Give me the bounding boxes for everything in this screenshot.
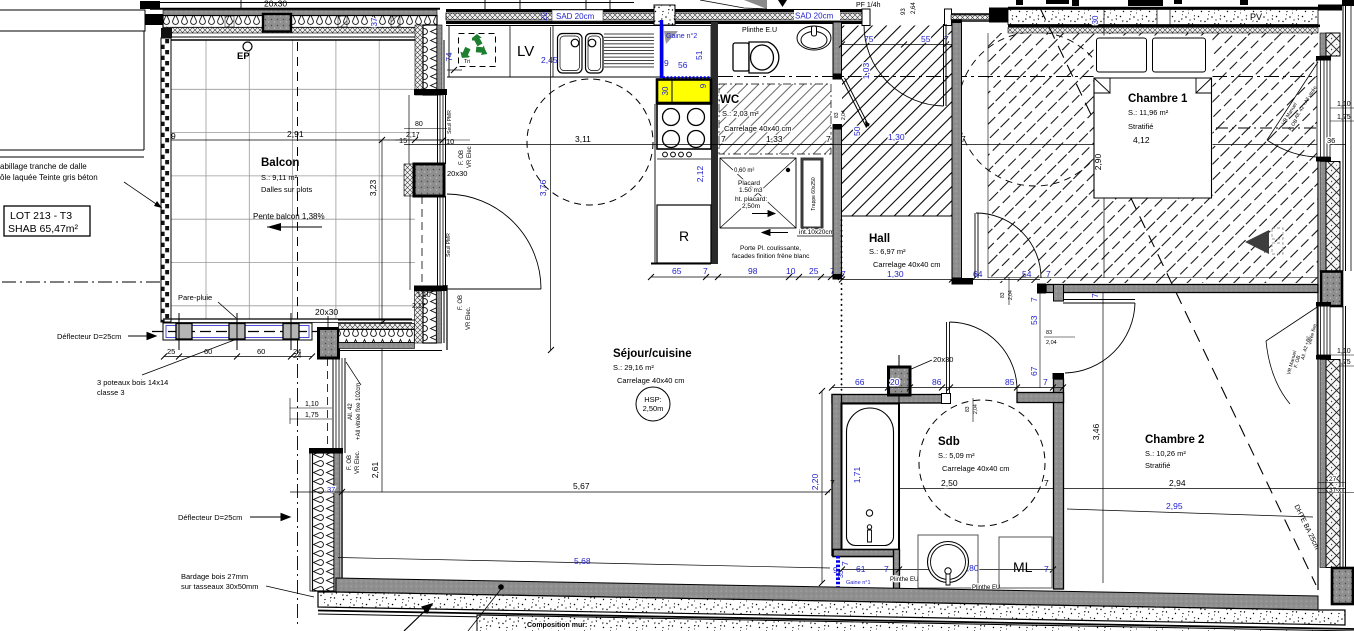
svg-text:20x30: 20x30 [447,169,467,178]
svg-text:2,50m: 2,50m [643,404,664,413]
svg-text:98: 98 [748,266,758,276]
svg-text:1,75: 1,75 [305,412,319,419]
svg-text:Déflecteur D=25cm: Déflecteur D=25cm [57,332,121,341]
svg-text:7: 7 [703,266,708,276]
svg-text:2,17: 2,17 [406,132,420,139]
svg-text:Stratifié: Stratifié [1128,122,1153,131]
svg-text:2,20: 2,20 [810,473,820,490]
svg-text:53: 53 [1029,315,1039,325]
svg-text:SHAB 65,47m²: SHAB 65,47m² [8,223,79,235]
svg-text:5,68: 5,68 [574,556,591,566]
svg-text:2,45: 2,45 [541,55,558,65]
svg-text:60: 60 [204,347,212,356]
svg-text:3,11: 3,11 [575,134,591,144]
svg-text:9: 9 [664,58,669,68]
svg-text:50: 50 [852,126,862,136]
svg-text:1,75: 1,75 [1337,114,1351,121]
svg-text:Balcon: Balcon [261,157,299,169]
svg-text:2,95: 2,95 [1166,501,1183,511]
svg-text:83: 83 [834,112,840,118]
svg-text:7: 7 [1090,293,1100,298]
svg-text:1,03: 1,03 [861,62,871,79]
svg-text:PV: PV [1250,12,1262,22]
svg-text:ôle laquée Teinte gris béton: ôle laquée Teinte gris béton [0,173,98,182]
svg-text:S.: 29,16 m²: S.: 29,16 m² [613,363,654,372]
svg-text:9: 9 [699,83,708,88]
svg-text:2,04: 2,04 [973,404,979,414]
svg-text:F. OB: F. OB [347,455,353,470]
svg-text:ML: ML [1013,559,1033,575]
svg-text:2,90: 2,90 [1093,153,1103,170]
svg-text:1,10: 1,10 [305,401,319,408]
svg-text:S.: 10,26 m²: S.: 10,26 m² [1145,449,1186,458]
svg-text:classe 3: classe 3 [97,388,125,397]
svg-text:Carrelage 40x40 cm: Carrelage 40x40 cm [724,124,792,133]
svg-text:Tri: Tri [464,59,470,65]
svg-text:1,30: 1,30 [888,132,905,142]
svg-text:4,12: 4,12 [1133,135,1150,145]
svg-text:Chambre 1: Chambre 1 [1128,93,1188,105]
svg-text:Séjour/cuisine: Séjour/cuisine [613,348,692,360]
svg-text:SAD 20cm: SAD 20cm [556,12,595,21]
svg-text:93: 93 [901,8,907,15]
svg-text:7: 7 [1044,564,1049,574]
svg-text:Seuil PMR: Seuil PMR [447,110,453,134]
svg-text:20: 20 [540,12,549,21]
svg-text:7: 7 [826,134,831,144]
svg-text:Plinthe E.U: Plinthe E.U [742,27,777,34]
svg-text:7: 7 [721,134,726,144]
svg-text:2,94: 2,94 [1169,478,1186,488]
svg-text:S.: 6,97 m²: S.: 6,97 m² [869,247,906,256]
svg-text:66: 66 [855,377,865,387]
svg-text:0,60 m²: 0,60 m² [734,168,754,174]
svg-text:All. 42: All. 42 [348,403,354,420]
svg-text:83: 83 [1000,292,1006,298]
svg-text:5,67: 5,67 [573,481,590,491]
svg-text:WC: WC [720,94,739,106]
svg-text:abillage tranche de dalle: abillage tranche de dalle [0,162,87,171]
svg-text:R: R [679,228,689,244]
svg-text:F. OB: F. OB [458,295,464,310]
svg-text:EP: EP [237,51,250,62]
svg-text:2,64: 2,64 [911,2,917,14]
svg-text:3,46: 3,46 [1091,423,1101,440]
svg-text:1,71: 1,71 [852,466,862,483]
svg-text:86: 86 [932,377,942,387]
svg-text:SAD 20cm: SAD 20cm [795,12,834,21]
svg-text:83: 83 [965,406,971,412]
svg-text:Seuil PMR: Seuil PMR [446,233,452,257]
svg-text:7: 7 [840,561,850,566]
svg-text:3 poteaux bois 14x14: 3 poteaux bois 14x14 [97,378,168,387]
svg-text:1.50 m3: 1.50 m3 [739,187,763,194]
svg-text:35: 35 [838,570,845,578]
svg-text:15: 15 [399,136,407,145]
svg-text:65: 65 [672,266,682,276]
svg-text:25: 25 [167,347,175,356]
svg-text:1,33: 1,33 [766,134,783,144]
svg-text:Pare-pluie: Pare-pluie [178,293,212,302]
svg-text:3,76: 3,76 [538,179,548,196]
svg-text:7: 7 [830,478,835,488]
svg-text:51: 51 [694,50,704,60]
svg-text:Gaine n°2: Gaine n°2 [666,32,697,40]
svg-text:2,61: 2,61 [370,461,380,478]
svg-text:3,23: 3,23 [368,179,378,196]
svg-text:7: 7 [1044,478,1049,488]
svg-text:37 x: 37 x [1329,487,1342,494]
svg-text:30: 30 [661,86,670,95]
svg-text:20x30: 20x30 [315,307,338,317]
svg-text:Carrelage 40x40 cm: Carrelage 40x40 cm [942,464,1010,473]
svg-text:85: 85 [1005,377,1015,387]
svg-text:74: 74 [445,52,454,61]
svg-text:Bardage bois 27mm: Bardage bois 27mm [181,572,248,581]
svg-text:Gaine n°1: Gaine n°1 [846,580,871,586]
svg-text:2,50: 2,50 [941,478,958,488]
svg-text:HSP:: HSP: [644,395,662,404]
svg-text:sur tasseaux 30x50mm: sur tasseaux 30x50mm [181,582,259,591]
svg-text:9: 9 [171,131,176,141]
svg-text:Sdb: Sdb [938,436,960,448]
svg-text:LOT 213 - T3: LOT 213 - T3 [10,210,72,222]
svg-text:S.: 9,11 m²: S.: 9,11 m² [261,173,298,182]
svg-text:Porte Pl. coulissante,: Porte Pl. coulissante, [740,245,801,252]
svg-text:56: 56 [678,60,688,70]
svg-text:37: 37 [327,485,335,494]
svg-text:83: 83 [1046,330,1052,336]
svg-text:Trappe 60x250: Trappe 60x250 [811,177,817,211]
svg-text:int.10x20cm: int.10x20cm [799,229,834,236]
svg-text:Dalles sur plots: Dalles sur plots [261,185,313,194]
svg-text:PF 1/4h: PF 1/4h [856,2,881,9]
svg-text:Carrelage 40x40 cm: Carrelage 40x40 cm [873,260,941,269]
svg-text:facades finition frêne blanc: facades finition frêne blanc [732,253,810,260]
svg-text:1,10: 1,10 [1337,348,1351,355]
svg-text:Chambre 2: Chambre 2 [1145,434,1204,446]
svg-text:S.: 11,96 m²: S.: 11,96 m² [1128,108,1169,117]
svg-text:2,91: 2,91 [287,129,304,139]
svg-text:36: 36 [1327,136,1335,145]
svg-text:Hall: Hall [869,233,890,245]
svg-text:LV: LV [517,43,534,60]
svg-text:S.: 5,09 m²: S.: 5,09 m² [938,451,975,460]
svg-text:27: 27 [1329,476,1337,483]
svg-text:60: 60 [257,347,265,356]
svg-text:Pente balcon 1,38%: Pente balcon 1,38% [253,212,325,221]
svg-text:37: 37 [370,17,379,26]
svg-text:80: 80 [415,121,423,128]
svg-text:1,10: 1,10 [1337,101,1351,108]
svg-text:S.: 2,03 m²: S.: 2,03 m² [722,109,759,118]
svg-text:ht. placard:: ht. placard: [735,196,767,203]
svg-text:VR Elec.: VR Elec. [466,306,472,330]
svg-text:VR Elec: VR Elec [467,146,473,168]
svg-text:Placard: Placard [738,180,760,187]
svg-text:Composition mur:: Composition mur: [527,622,587,629]
svg-text:2,17: 2,17 [412,303,426,310]
svg-text:30: 30 [1091,15,1100,24]
svg-text:Stratifié: Stratifié [1145,461,1170,470]
svg-text:2,04: 2,04 [1046,340,1057,346]
svg-text:1,10: 1,10 [417,292,431,299]
svg-text:VR Elec.: VR Elec. [355,450,361,474]
svg-text:9: 9 [833,565,838,575]
svg-text:Plinthe EU: Plinthe EU [890,577,918,583]
svg-text:20: 20 [890,377,900,387]
svg-text:7: 7 [1043,377,1048,387]
svg-text:25: 25 [809,266,819,276]
svg-text:2,50m: 2,50m [742,203,760,210]
svg-text:+All vitrée fixe 102cm: +All vitrée fixe 102cm [356,383,362,440]
svg-text:2,12: 2,12 [695,165,705,182]
svg-text:7: 7 [1029,297,1039,302]
svg-text:7: 7 [884,564,889,574]
svg-text:Carrelage 40x40 cm: Carrelage 40x40 cm [617,376,685,385]
svg-text:F. OB: F. OB [459,150,465,165]
svg-text:10: 10 [786,266,796,276]
svg-text:20x30: 20x30 [264,0,287,9]
svg-text:Déflecteur D=25cm: Déflecteur D=25cm [178,513,242,522]
svg-text:55: 55 [921,34,931,44]
svg-text:61: 61 [856,564,866,574]
svg-text:20x30: 20x30 [933,355,953,364]
svg-text:67: 67 [1029,366,1039,376]
svg-text:1,30: 1,30 [887,269,904,279]
